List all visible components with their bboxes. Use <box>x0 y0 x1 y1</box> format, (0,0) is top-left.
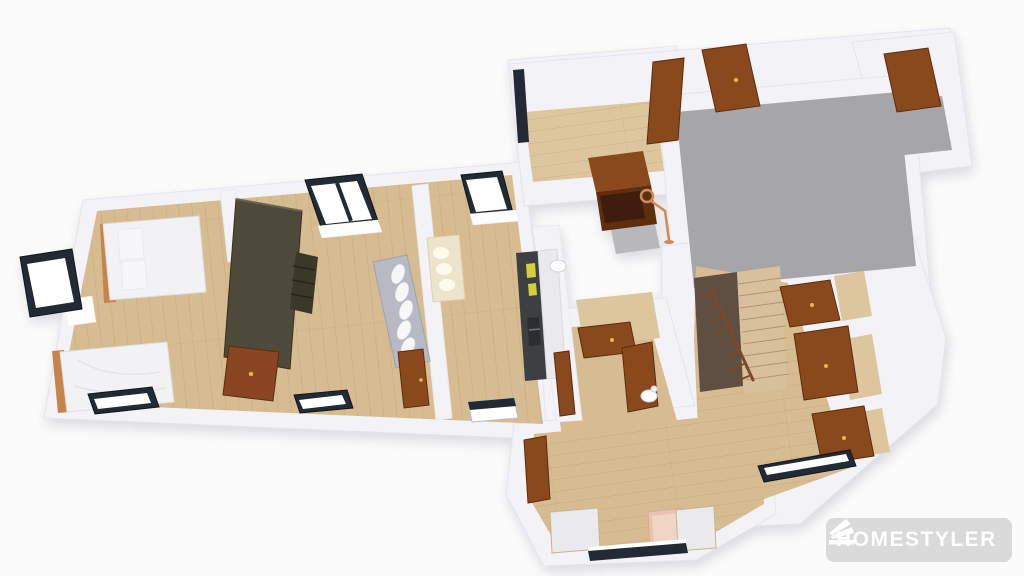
sideboard-glow-2 <box>436 263 452 275</box>
door-junction-1-handle <box>610 338 614 342</box>
oven <box>527 317 541 346</box>
sideboard-glow-1 <box>433 247 449 259</box>
door-entry <box>524 436 550 503</box>
homestyler-fan-logo-icon <box>826 518 856 546</box>
door-hall-3-handle <box>842 436 846 440</box>
staircase <box>737 266 787 394</box>
kitchen-sink <box>550 260 566 272</box>
door-living <box>398 349 429 408</box>
kitchen-yellow-item-1 <box>526 263 536 278</box>
sideboard-glow-3 <box>439 279 455 291</box>
wardrobe <box>224 199 302 369</box>
door-hall-1 <box>780 280 840 327</box>
door-hall-2 <box>794 326 858 400</box>
kitchen-yellow-item-2 <box>528 283 537 296</box>
door-patio-1-handle <box>734 78 738 82</box>
oven-handle <box>529 329 540 330</box>
study-dresser-interior <box>600 191 645 223</box>
window-bottom-dining <box>468 398 518 422</box>
door-hall-1-handle <box>810 303 814 307</box>
scene-canvas <box>0 0 1024 576</box>
homestyler-watermark: HOMESTYLER <box>826 518 1012 562</box>
door-top-room <box>647 58 684 144</box>
door-living-handle <box>419 378 423 382</box>
study-dresser-top <box>588 151 651 192</box>
storage-cabinet-left <box>550 508 600 553</box>
door-hall-2-handle <box>824 364 828 368</box>
dresser-handle <box>249 372 253 376</box>
toilet-tank <box>651 386 657 392</box>
watermark-label: HOMESTYLER <box>836 528 997 552</box>
double-bed-pillow-1 <box>118 228 144 260</box>
double-bed-pillow-2 <box>121 260 147 290</box>
double-bed <box>103 216 206 300</box>
floor-plan-render: HOMESTYLER <box>0 0 1024 576</box>
